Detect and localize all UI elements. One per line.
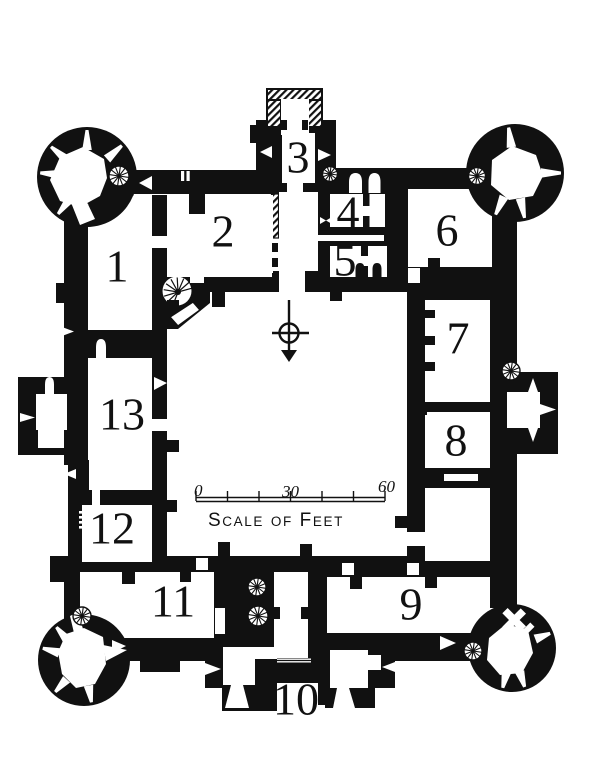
svg-text:30: 30: [281, 482, 300, 501]
svg-text:4: 4: [337, 187, 360, 238]
svg-text:0: 0: [194, 481, 203, 500]
svg-text:8: 8: [445, 415, 468, 466]
svg-text:13: 13: [99, 389, 145, 440]
svg-text:SCALE OF FEET: SCALE OF FEET: [208, 510, 344, 531]
svg-text:9: 9: [400, 579, 423, 630]
svg-text:3: 3: [287, 132, 310, 183]
svg-text:1: 1: [106, 241, 129, 292]
svg-text:6: 6: [436, 205, 459, 256]
svg-text:10: 10: [273, 674, 319, 725]
svg-text:2: 2: [212, 206, 235, 257]
svg-text:5: 5: [334, 235, 357, 286]
svg-text:11: 11: [151, 576, 195, 627]
svg-text:60: 60: [378, 477, 396, 496]
svg-text:7: 7: [447, 313, 470, 364]
svg-text:12: 12: [89, 503, 135, 554]
